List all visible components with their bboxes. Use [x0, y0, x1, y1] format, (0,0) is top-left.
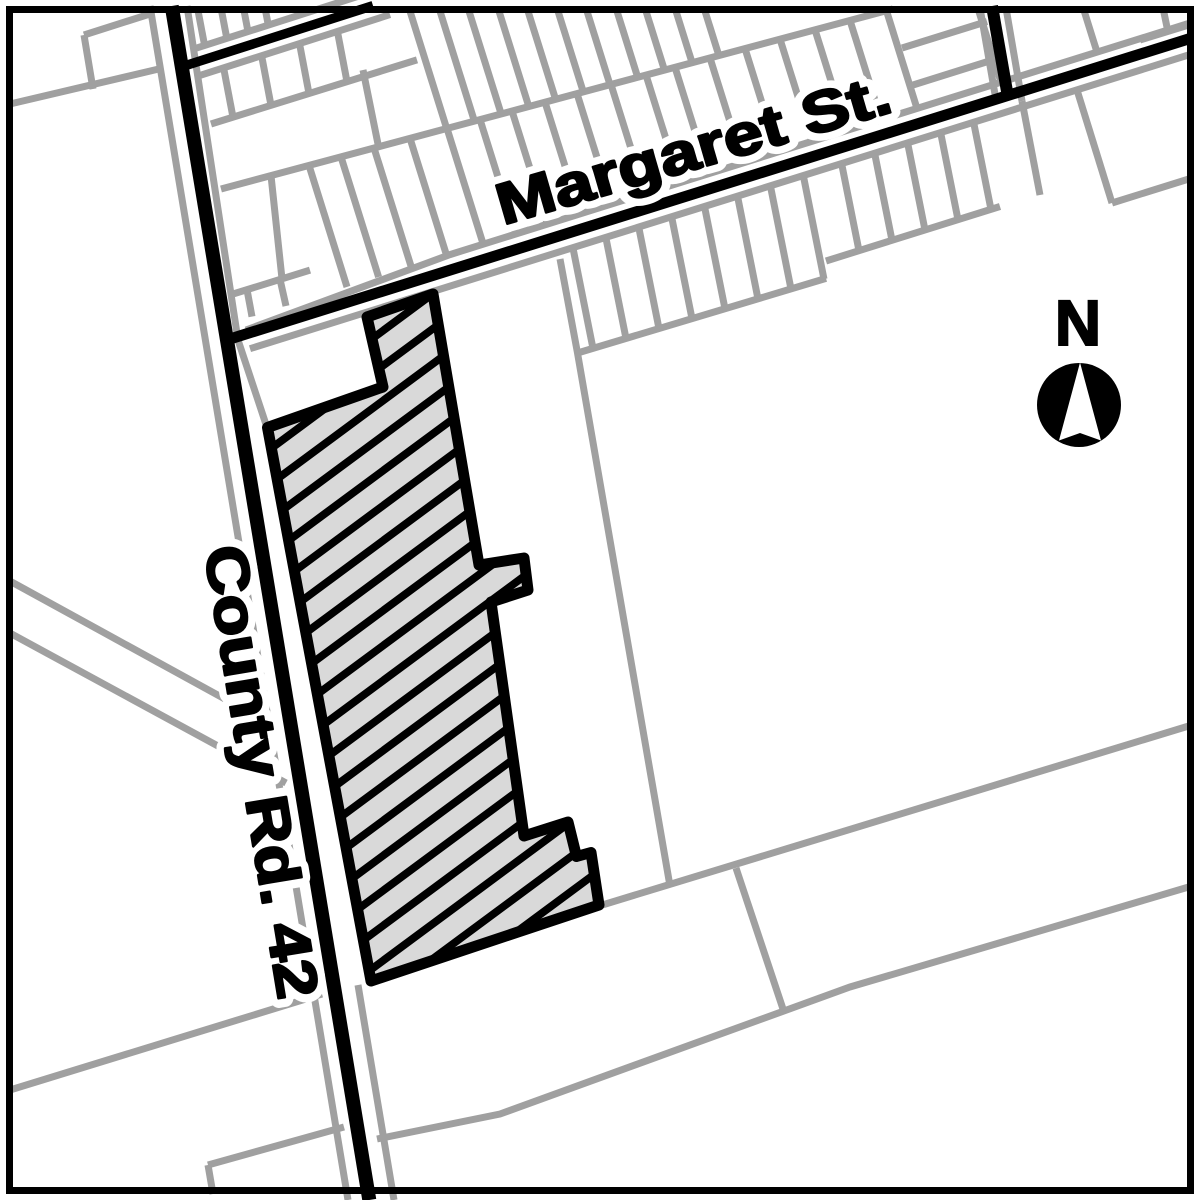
svg-text:N: N	[1055, 287, 1101, 359]
